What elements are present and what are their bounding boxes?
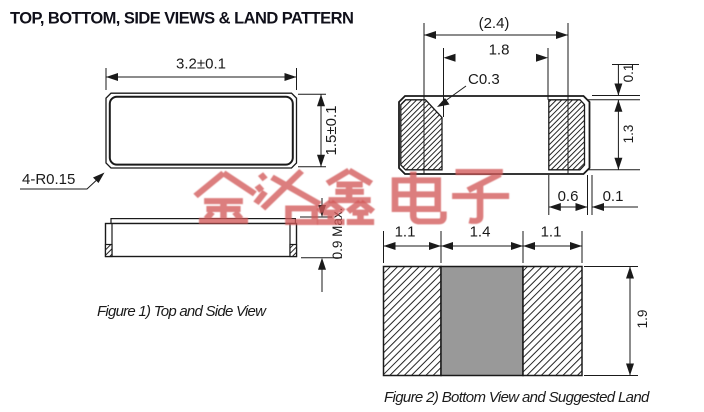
svg-text:TOP, BOTTOM, SIDE VIEWS & LAND: TOP, BOTTOM, SIDE VIEWS & LAND PATTERN [10,10,353,28]
svg-text:1.1: 1.1 [395,224,416,241]
svg-text:1.3: 1.3 [621,125,636,144]
svg-text:C0.3: C0.3 [468,71,500,88]
svg-text:Figure 1) Top and Side View: Figure 1) Top and Side View [97,303,267,320]
svg-text:0.6: 0.6 [558,188,579,205]
svg-text:4-R0.15: 4-R0.15 [22,171,75,188]
svg-text:1.1: 1.1 [541,224,562,241]
svg-text:1.4: 1.4 [470,224,491,241]
svg-text:1.5±0.1: 1.5±0.1 [323,106,340,156]
svg-text:3.2±0.1: 3.2±0.1 [176,56,226,73]
svg-text:Figure 2) Bottom View and Sug: Figure 2) Bottom View and Suggested Land [384,389,650,406]
svg-text:1.9: 1.9 [635,310,650,329]
svg-text:1.8: 1.8 [489,42,510,59]
svg-text:0.1: 0.1 [621,64,636,83]
svg-text:(2.4): (2.4) [479,15,510,32]
svg-text:0.1: 0.1 [603,188,624,205]
